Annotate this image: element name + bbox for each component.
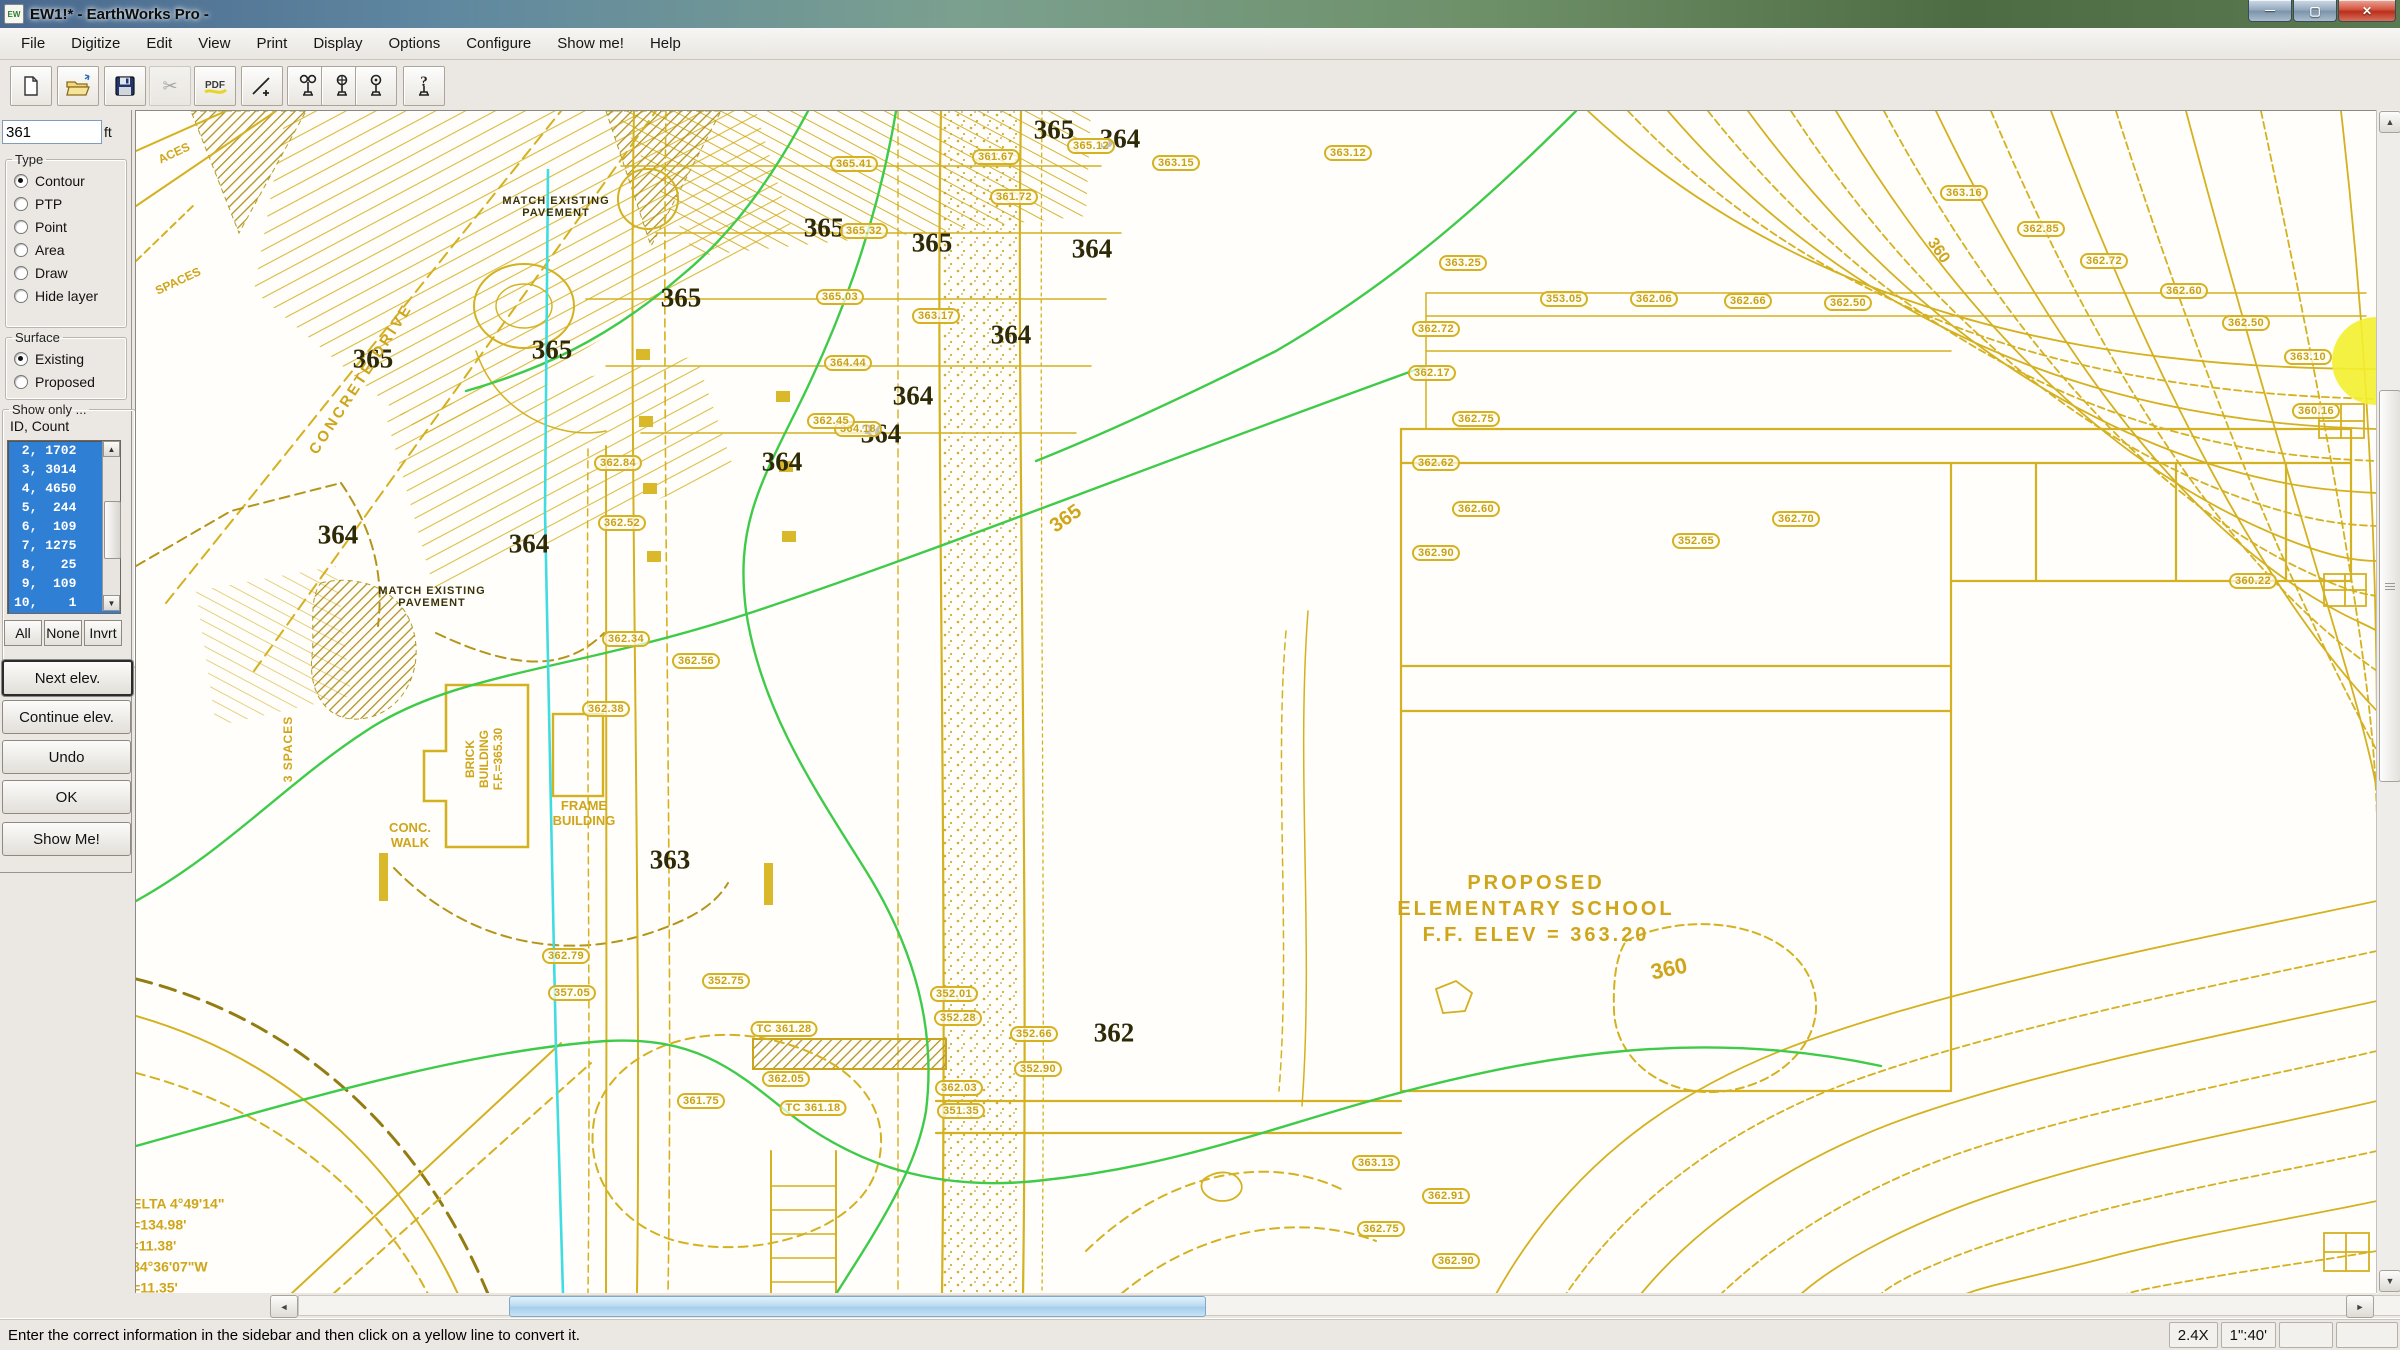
type-groupbox: Type ContourPTPPointAreaDrawHide layer — [5, 152, 127, 328]
menu-print[interactable]: Print — [243, 31, 300, 56]
menu-help[interactable]: Help — [637, 31, 694, 56]
status-cell-empty — [2279, 1322, 2333, 1348]
list-scrollbar[interactable]: ▲ ▼ — [102, 441, 120, 611]
none-button[interactable]: None — [44, 620, 82, 646]
horizontal-scrollbar[interactable]: ◄ ► — [135, 1293, 2376, 1318]
radio-existing[interactable]: Existing — [12, 347, 122, 370]
radio-label: Proposed — [35, 374, 95, 390]
radio-dot-icon — [14, 352, 28, 366]
radio-dot-icon — [14, 375, 28, 389]
cut-icon: ✂ — [158, 74, 182, 98]
maximize-button[interactable]: ▢ — [2293, 0, 2337, 22]
scale-indicator: 1":40' — [2221, 1322, 2276, 1348]
site-plan-svg — [136, 111, 2377, 1294]
elevation-input[interactable] — [2, 120, 102, 144]
vertical-scroll-thumb[interactable] — [2379, 390, 2400, 782]
menu-options[interactable]: Options — [376, 31, 454, 56]
takeoff-pin-icon — [296, 73, 320, 99]
drawing-canvas[interactable]: 3653643653653643653643653653643643643643… — [135, 110, 2377, 1294]
new-file-button[interactable] — [10, 66, 52, 106]
radio-draw[interactable]: Draw — [12, 261, 122, 284]
new-file-icon — [19, 74, 43, 98]
menu-configure[interactable]: Configure — [453, 31, 544, 56]
next-elev-button[interactable]: Next elev. — [2, 660, 133, 696]
surface-group-label: Surface — [12, 330, 63, 345]
menu-show-me[interactable]: Show me! — [544, 31, 637, 56]
title-bar[interactable]: EW EW1!* - EarthWorks Pro - —▢✕ — [0, 0, 2400, 28]
type-group-label: Type — [12, 152, 46, 167]
list-scroll-down-icon[interactable]: ▼ — [103, 595, 120, 611]
scroll-left-icon[interactable]: ◄ — [270, 1295, 298, 1318]
takeoff-pin-2-icon — [330, 73, 354, 99]
undo-button[interactable]: Undo — [2, 740, 131, 774]
cursor-highlight — [2332, 317, 2377, 405]
horizontal-scroll-track[interactable] — [298, 1295, 2400, 1316]
menu-bar: FileDigitizeEditViewPrintDisplayOptionsC… — [0, 28, 2400, 60]
scroll-down-icon[interactable]: ▼ — [2379, 1270, 2400, 1292]
status-message: Enter the correct information in the sid… — [0, 1327, 2169, 1344]
radio-dot-icon — [14, 174, 28, 188]
radio-dot-icon — [14, 197, 28, 211]
menu-display[interactable]: Display — [300, 31, 375, 56]
stippled-road-band — [942, 111, 1021, 1294]
radio-dot-icon — [14, 243, 28, 257]
digitize-line-button[interactable] — [241, 66, 283, 106]
radio-label: Draw — [35, 265, 68, 281]
takeoff-pin-3-icon — [364, 73, 388, 99]
pdf-button[interactable]: PDF — [194, 66, 236, 106]
menu-file[interactable]: File — [8, 31, 58, 56]
radio-dot-icon — [14, 266, 28, 280]
radio-label: PTP — [35, 196, 62, 212]
all-button[interactable]: All — [4, 620, 42, 646]
cut-button: ✂ — [149, 66, 191, 106]
takeoff-pin-3-button[interactable] — [355, 66, 397, 106]
radio-area[interactable]: Area — [12, 238, 122, 261]
toolbar: ✂PDF? — [0, 60, 2400, 111]
vertical-scrollbar[interactable]: ▲ ▼ — [2376, 110, 2400, 1293]
status-cell-empty — [2336, 1322, 2398, 1348]
minimize-button[interactable]: — — [2248, 0, 2292, 22]
list-scroll-thumb[interactable] — [104, 501, 121, 559]
surface-groupbox: Surface ExistingProposed — [5, 330, 127, 400]
minimize-icon: — — [2265, 6, 2275, 16]
radio-label: Hide layer — [35, 288, 98, 304]
svg-text:PDF: PDF — [205, 80, 225, 91]
elevation-unit-label: ft — [104, 124, 112, 140]
scroll-right-icon[interactable]: ► — [2346, 1295, 2374, 1318]
save-icon — [113, 74, 137, 98]
radio-hide-layer[interactable]: Hide layer — [12, 284, 122, 307]
svg-text:✂: ✂ — [162, 76, 177, 97]
radio-point[interactable]: Point — [12, 215, 122, 238]
continue-elev-button[interactable]: Continue elev. — [2, 700, 131, 734]
list-scroll-up-icon[interactable]: ▲ — [103, 441, 120, 457]
id-count-label: ID, Count — [10, 418, 69, 434]
sidebar: ft Type ContourPTPPointAreaDrawHide laye… — [0, 110, 135, 1350]
radio-contour[interactable]: Contour — [12, 169, 122, 192]
zoom-level-indicator: 2.4X — [2169, 1322, 2218, 1348]
radio-label: Existing — [35, 351, 84, 367]
invrt-button[interactable]: Invrt — [84, 620, 122, 646]
close-button[interactable]: ✕ — [2338, 0, 2396, 22]
digitize-line-icon — [249, 74, 275, 98]
save-button[interactable] — [104, 66, 146, 106]
close-icon: ✕ — [2362, 5, 2372, 17]
radio-label: Point — [35, 219, 67, 235]
open-file-button[interactable] — [57, 66, 99, 106]
id-count-listbox[interactable]: 2, 1702 3, 3014 4, 4650 5, 244 6, 109 7,… — [7, 440, 121, 614]
help-pin-icon: ? — [412, 73, 436, 99]
radio-dot-icon — [14, 289, 28, 303]
status-bar: Enter the correct information in the sid… — [0, 1318, 2400, 1350]
radio-label: Contour — [35, 173, 85, 189]
radio-proposed[interactable]: Proposed — [12, 370, 122, 393]
pdf-icon: PDF — [201, 74, 229, 98]
radio-label: Area — [35, 242, 65, 258]
horizontal-scroll-thumb[interactable] — [509, 1296, 1206, 1317]
sidebar-panel: ft Type ContourPTPPointAreaDrawHide laye… — [0, 110, 132, 873]
earthworks-pro-window: EW EW1!* - EarthWorks Pro - —▢✕ FileDigi… — [0, 0, 2400, 1350]
caption-buttons: —▢✕ — [2247, 0, 2396, 22]
radio-dot-icon — [14, 220, 28, 234]
menu-view[interactable]: View — [185, 31, 243, 56]
window-title: EW1!* - EarthWorks Pro - — [30, 6, 209, 23]
scroll-up-icon[interactable]: ▲ — [2379, 111, 2400, 133]
radio-ptp[interactable]: PTP — [12, 192, 122, 215]
ok-button[interactable]: OK — [2, 780, 131, 814]
help-pin-button[interactable]: ? — [403, 66, 445, 106]
menu-edit[interactable]: Edit — [133, 31, 185, 56]
app-icon: EW — [4, 4, 24, 24]
show-me-button[interactable]: Show Me! — [2, 822, 131, 856]
show-only-label: Show only ... — [9, 402, 89, 417]
menu-digitize[interactable]: Digitize — [58, 31, 133, 56]
open-file-icon — [65, 74, 91, 98]
maximize-icon: ▢ — [2309, 5, 2320, 17]
